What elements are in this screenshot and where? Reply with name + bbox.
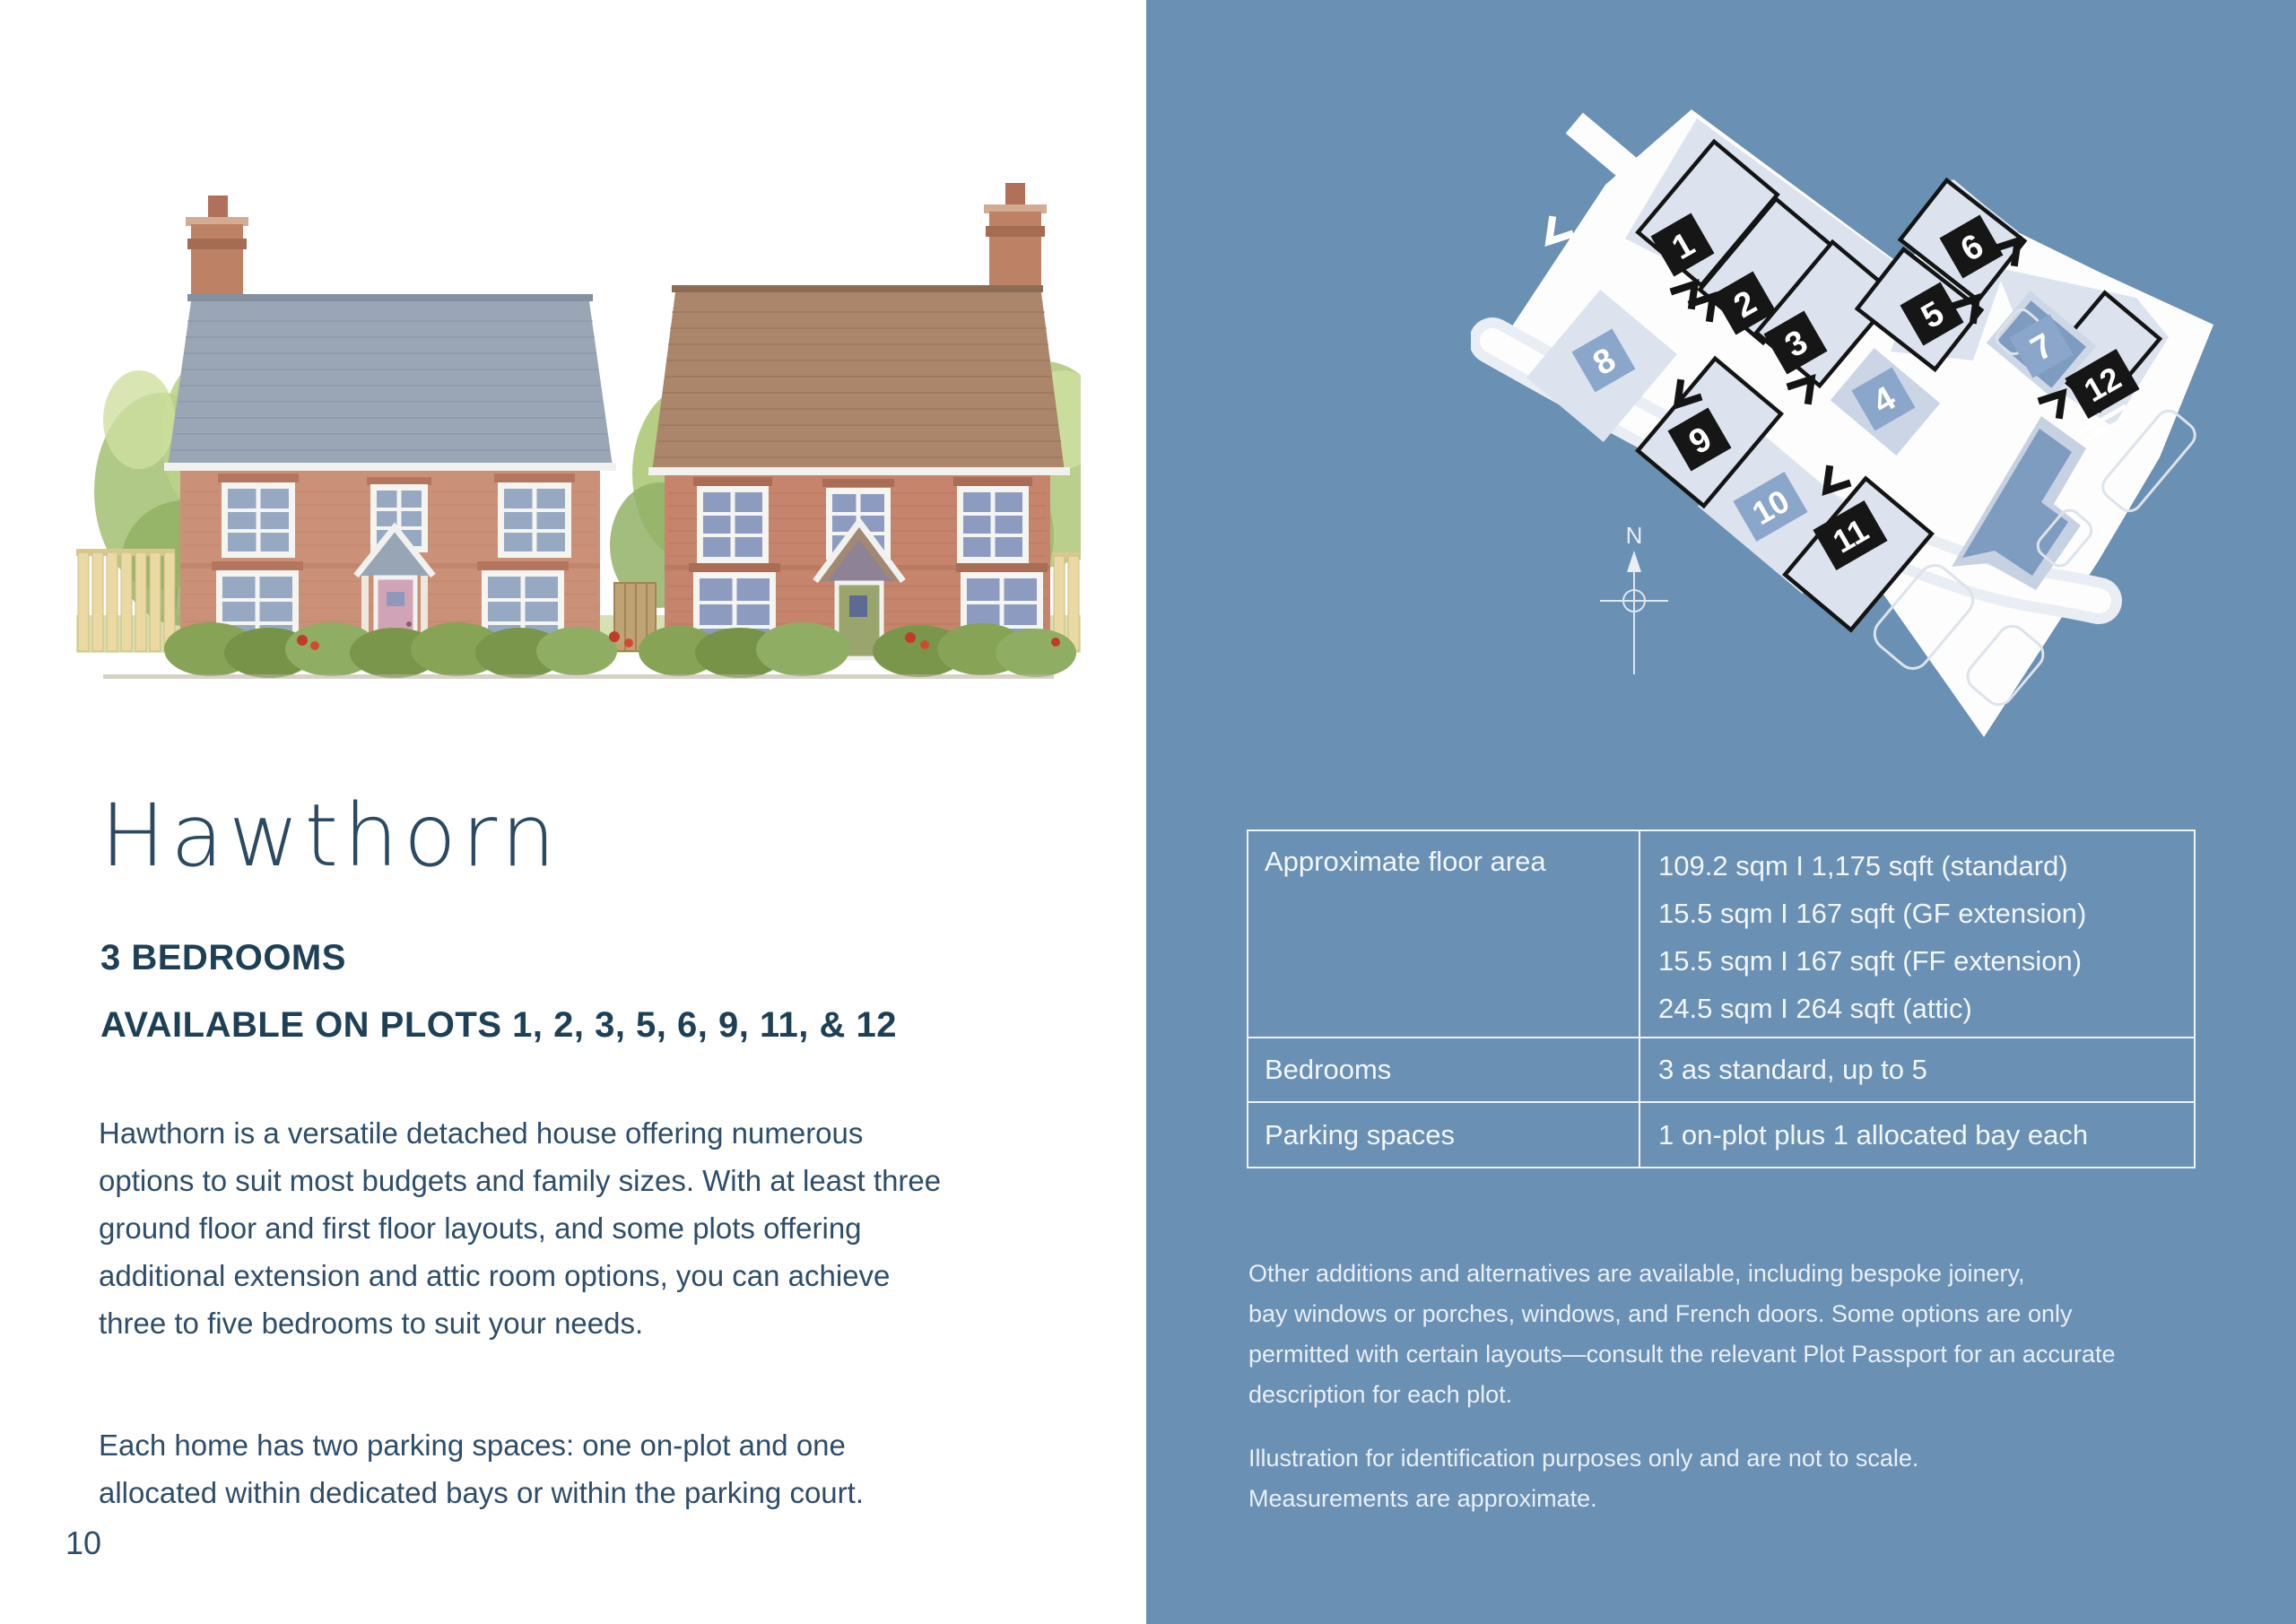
spec-row-parking-label: Parking spaces	[1248, 1101, 1640, 1167]
description-line: options to suit most budgets and family …	[99, 1157, 941, 1204]
options-note-line: Other additions and alternatives are ava…	[1248, 1254, 2115, 1294]
page-number: 10	[65, 1524, 101, 1562]
availability-heading: AVAILABLE ON PLOTS 1, 2, 3, 5, 6, 9, 11,…	[100, 1005, 897, 1046]
site-plan: 1 2 3 4 5 6 7 8 9 10	[1471, 36, 2296, 753]
house-illustration	[76, 151, 1081, 689]
options-note-line: description for each plot.	[1248, 1375, 2115, 1415]
options-note-line: permitted with certain layouts—consult t…	[1248, 1334, 2115, 1375]
floor-area-ff-extension: 15.5 sqm I 167 sqft (FF extension)	[1658, 937, 2194, 985]
left-house-fascia	[164, 463, 616, 471]
left-roof-ridge	[187, 294, 593, 301]
north-arrow-head	[1627, 551, 1641, 572]
floor-area-gf-extension: 15.5 sqm I 167 sqft (GF extension)	[1658, 890, 2194, 937]
right-house	[648, 183, 1070, 660]
floor-area-standard: 109.2 sqm I 1,175 sqft (standard)	[1658, 842, 2194, 890]
description-line: Hawthorn is a versatile detached house o…	[99, 1109, 941, 1157]
right-house-roof	[652, 292, 1065, 472]
page-title: Hawthorn	[100, 793, 561, 879]
disclaimer-line: Illustration for identification purposes…	[1248, 1438, 1918, 1479]
spec-row-bedrooms-label: Bedrooms	[1248, 1037, 1640, 1101]
description-paragraph-2: Each home has two parking spaces: one on…	[99, 1421, 864, 1516]
spec-table: Approximate floor area 109.2 sqm I 1,175…	[1247, 829, 2196, 1168]
right-house-fascia	[648, 467, 1070, 475]
left-house-roof	[168, 301, 613, 466]
disclaimer-line: Measurements are approximate.	[1248, 1479, 1918, 1519]
spec-row-floor-area-values: 109.2 sqm I 1,175 sqft (standard) 15.5 s…	[1640, 831, 2194, 1037]
right-roof-ridge	[672, 285, 1043, 292]
disclaimer-note: Illustration for identification purposes…	[1248, 1438, 1918, 1519]
description-paragraph-1: Hawthorn is a versatile detached house o…	[99, 1109, 941, 1347]
options-note: Other additions and alternatives are ava…	[1248, 1254, 2115, 1415]
spec-row-floor-area-label: Approximate floor area	[1248, 831, 1640, 1037]
description-line: additional extension and attic room opti…	[99, 1252, 941, 1299]
ground-line	[103, 674, 1054, 679]
floor-area-attic: 24.5 sqm I 264 sqft (attic)	[1658, 985, 2194, 1032]
description-line: Each home has two parking spaces: one on…	[99, 1421, 864, 1469]
description-line: allocated within dedicated bays or withi…	[99, 1469, 864, 1516]
spec-row-bedrooms-value: 3 as standard, up to 5	[1640, 1037, 2194, 1101]
bedrooms-heading: 3 BEDROOMS	[100, 938, 346, 978]
description-line: ground floor and first floor layouts, an…	[99, 1204, 941, 1252]
left-house	[164, 195, 616, 659]
right-house-chimney	[984, 183, 1047, 292]
left-house-chimney	[186, 195, 248, 305]
north-arrow: N	[1600, 522, 1668, 674]
options-note-line: bay windows or porches, windows, and Fre…	[1248, 1294, 2115, 1334]
north-arrow-label: N	[1626, 522, 1643, 549]
description-line: three to five bedrooms to suit your need…	[99, 1299, 941, 1347]
site-entrance-stub	[1566, 113, 1649, 189]
spec-row-parking-value: 1 on-plot plus 1 allocated bay each	[1640, 1101, 2194, 1167]
